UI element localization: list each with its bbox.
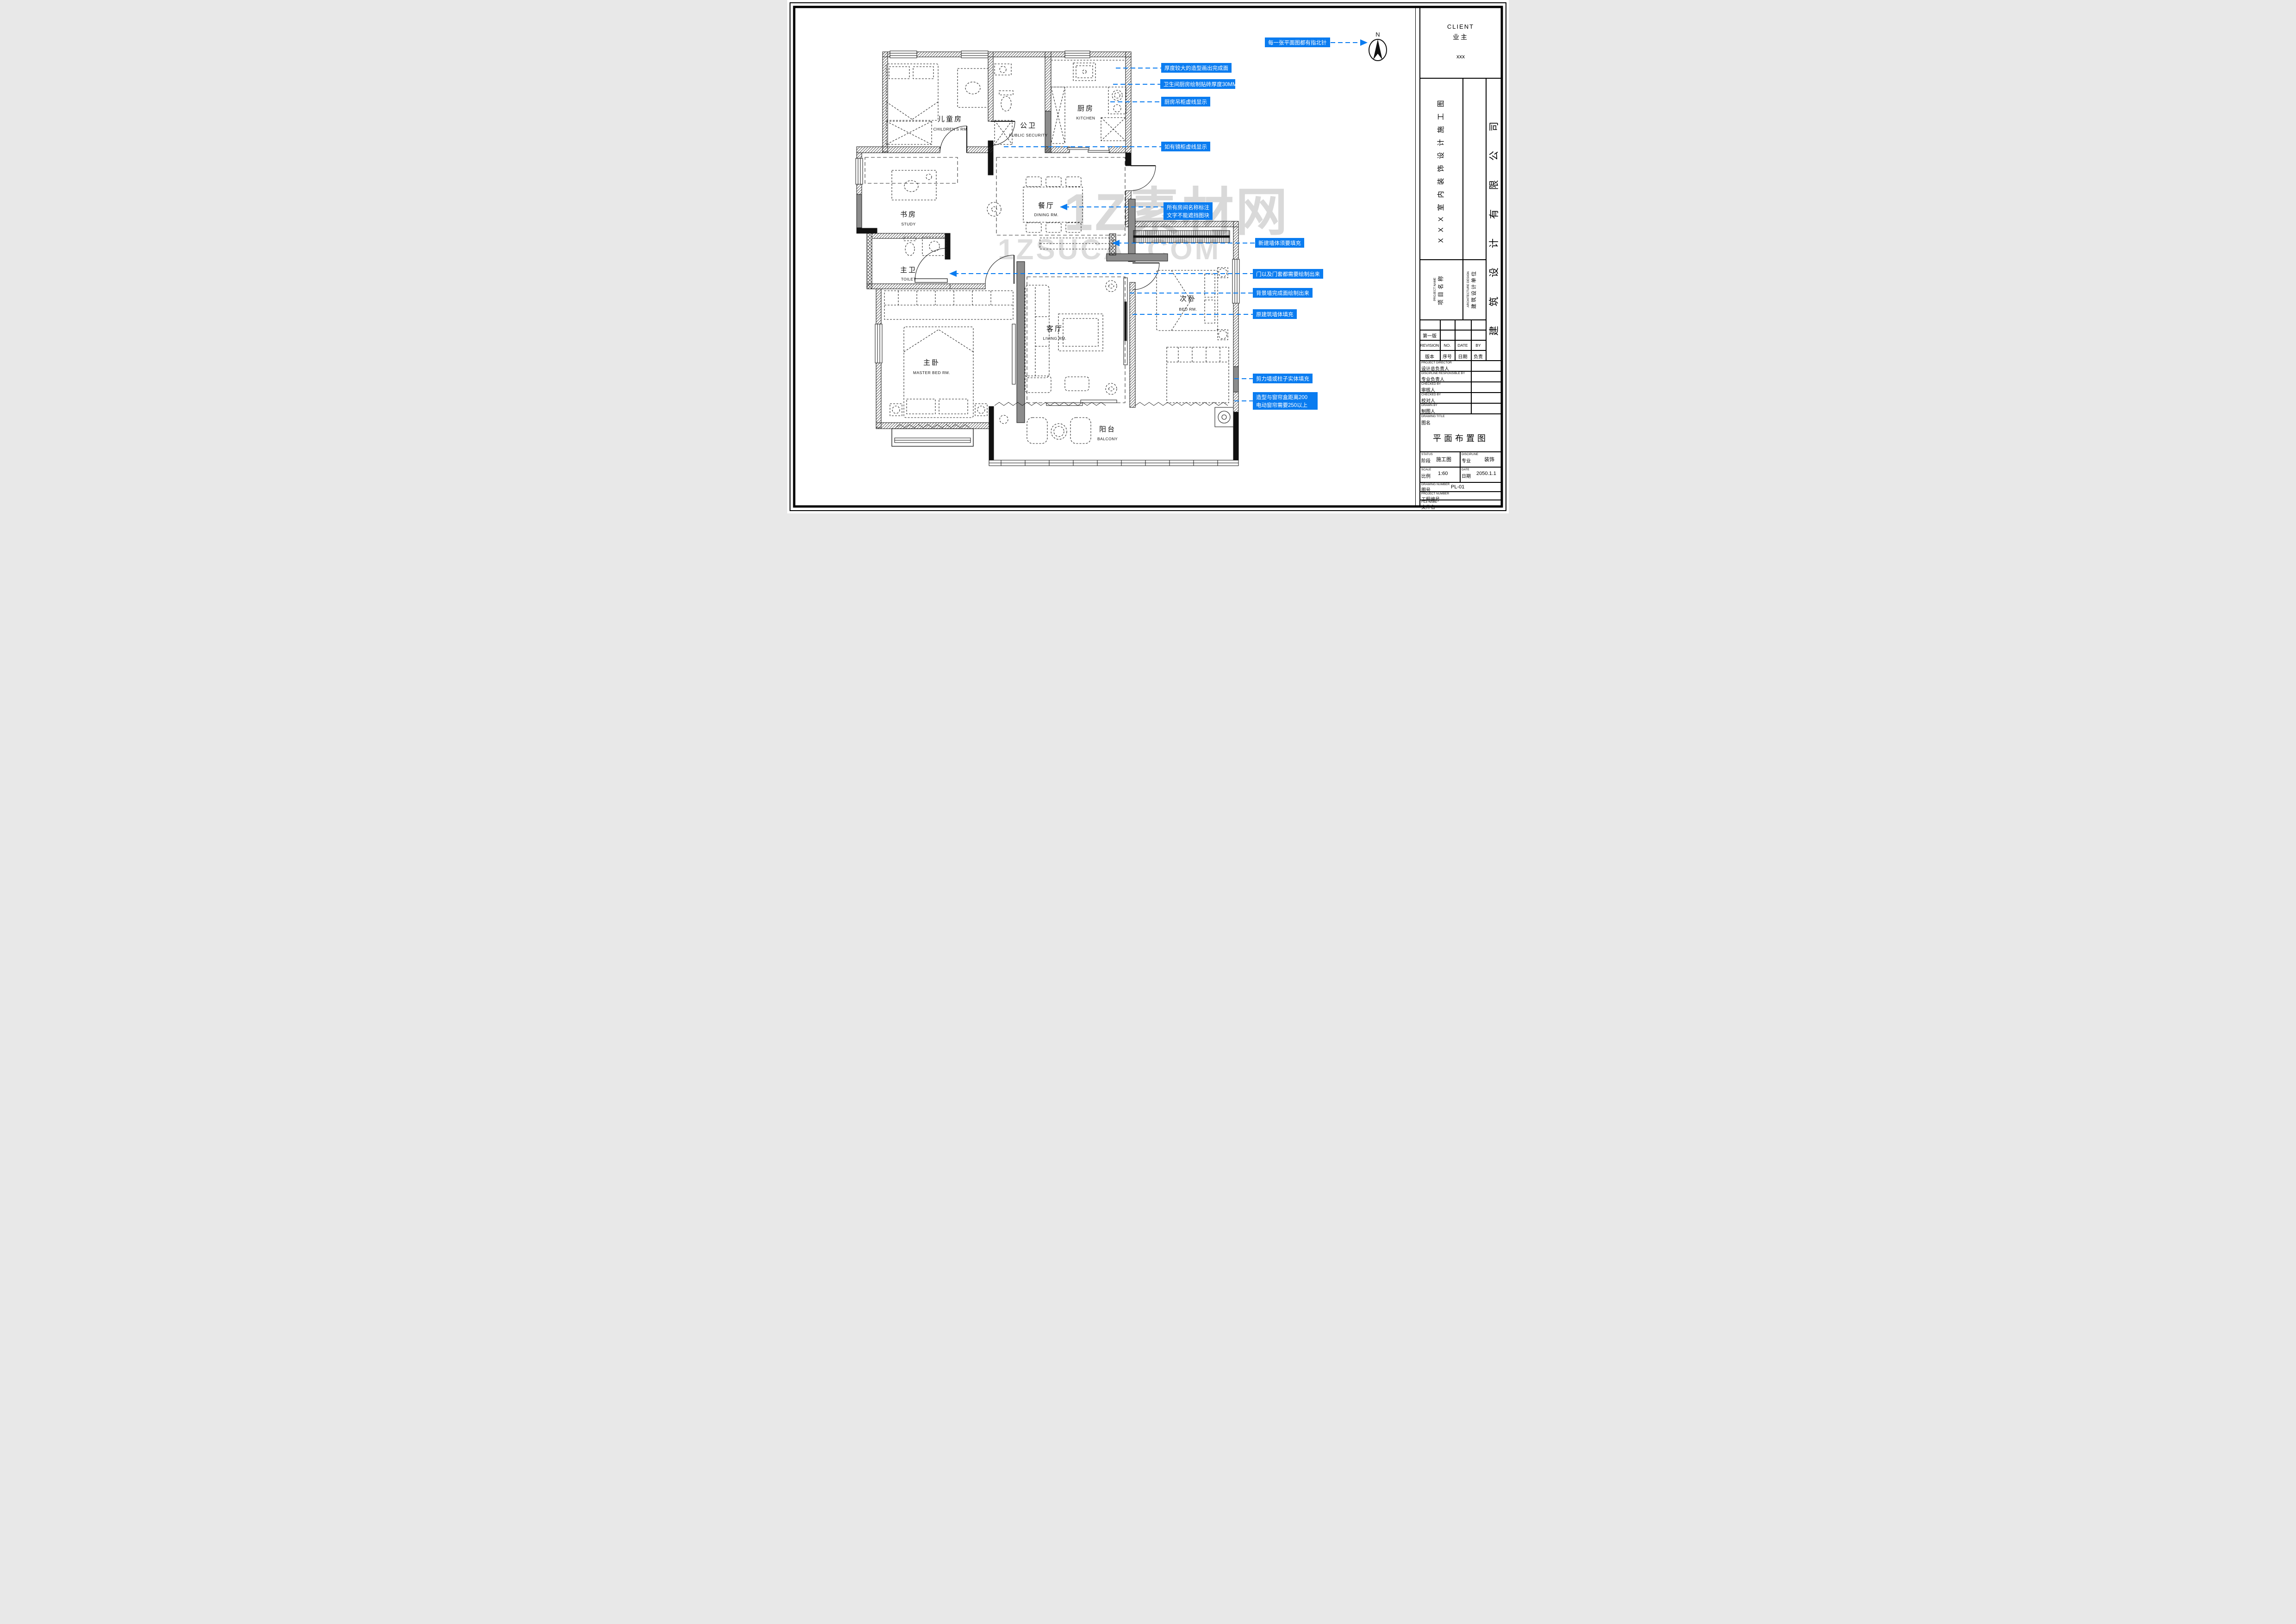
annotation-text: 电动窗帘需要250以上 — [1256, 402, 1307, 408]
drawing-sheet: 1Z素材网 1ZSUCAI.COM — [787, 0, 1509, 513]
master-tv-panel — [1012, 324, 1015, 384]
annotation-feature-wall: 背景墙完成面绘制出来 — [1253, 288, 1313, 298]
discipline-en: DISCIPLINE — [1462, 453, 1478, 456]
room-sublabel-balcony: BALCONY — [1097, 437, 1118, 441]
drawing-number-value: PL-01 — [1451, 484, 1464, 490]
date-cn: 日期 — [1462, 472, 1471, 479]
project-name-cn: 项目名称 — [1437, 262, 1444, 317]
annotation-text: 文字不能遮挡图块 — [1167, 212, 1209, 219]
bay-window — [892, 429, 973, 446]
room-label-kitchen: 厨房 — [1077, 105, 1094, 112]
project-name-vertical: PROJECT NAME 项目名称 — [1433, 262, 1448, 317]
project-director-en: PROJECT DIRECTOR — [1421, 361, 1452, 364]
kitchen-fridge — [1101, 118, 1126, 141]
annotation-thick-shape: 厚度较大的造型画出完成面 — [1161, 63, 1232, 73]
kitchen-sliding-door — [1068, 148, 1109, 152]
new-wall-fill — [1109, 234, 1116, 255]
project-name-en: PROJECT NAME — [1433, 262, 1437, 317]
scale-value: 1:60 — [1438, 471, 1448, 476]
title-block-outer-line — [1415, 7, 1416, 506]
drawing-title-value: 平面布置图 — [1419, 432, 1502, 444]
drawing-title-cn: 图名 — [1421, 419, 1431, 426]
north-label: N — [1375, 31, 1380, 38]
bath-sink — [995, 64, 1011, 75]
revision-header-cn: 版本 — [1419, 353, 1440, 360]
annotation-text: 所有房间名称标注 — [1167, 204, 1209, 211]
discipline-cn: 专业 — [1462, 457, 1471, 464]
coffee-table — [1058, 314, 1103, 351]
annotation-mirror-cabinet: 如有镜柜虚线显示 — [1161, 142, 1210, 151]
annotation-text: 背景墙完成面绘制出来 — [1256, 290, 1309, 296]
drawn-by-en: DRAWN BY — [1421, 404, 1437, 407]
room-sublabel-children: CHILDREN'S RM — [933, 127, 967, 131]
annotation-doors: 门以及门套都需要绘制出来 — [1253, 269, 1323, 279]
bath-toilet — [999, 91, 1013, 111]
kitchen-stove — [1108, 87, 1126, 114]
revision-first-version: 第一版 — [1419, 332, 1440, 339]
second-nightstands — [1218, 268, 1228, 340]
room-label-master-bath: 主卫 — [900, 266, 917, 274]
master-bath-toilet — [904, 237, 916, 256]
proofread-by-en: CHECKED BY — [1421, 393, 1441, 396]
architecture-design-en: ARCHITECTURE DESIGN — [1467, 261, 1470, 318]
room-label-children: 儿童房 — [938, 115, 963, 123]
drawing-title-en: DRAWING TITLE — [1421, 415, 1445, 418]
room-sublabel-study: STUDY — [901, 222, 915, 226]
kitchen-tall-cabinet — [1051, 87, 1065, 144]
window — [890, 51, 917, 58]
annotation-text: 厚度较大的造型画出完成面 — [1164, 65, 1228, 71]
project-director-cn: 设计总负责人 — [1421, 365, 1449, 372]
room-sublabel-master-bed: MASTER BED RM. — [913, 370, 950, 375]
room-sublabel-dining: DINING RM. — [1034, 212, 1059, 217]
washing-machine — [1215, 407, 1233, 427]
room-sublabel-second-bed: BED RM. — [1179, 307, 1197, 312]
by-header-en: BY — [1471, 343, 1486, 348]
children-mat — [886, 121, 932, 144]
scale-en: SCALE — [1421, 468, 1431, 471]
annotation-text: 如有镜柜虚线显示 — [1164, 144, 1207, 150]
client-label-cn: 业主 — [1419, 32, 1502, 42]
annotation-new-wall: 新建墙体须要填充 — [1255, 238, 1304, 248]
room-label-public-bath: 公卫 — [1020, 122, 1037, 130]
no-header-cn: 序号 — [1440, 353, 1455, 360]
file-name-cn: 文件名 — [1421, 503, 1435, 510]
drawing-number-en: DRAWING NUMBER — [1421, 483, 1450, 486]
scale-cn: 比例 — [1421, 472, 1431, 479]
tv-console — [1124, 278, 1127, 365]
title-block: CLIENT 业主 xxx XXX室内装饰设计施工图 建筑设计有限公司 PROJ… — [1419, 7, 1502, 506]
ottoman — [1065, 377, 1089, 391]
balcony-chairs — [1027, 418, 1091, 443]
master-wardrobe — [884, 291, 1013, 319]
annotation-text: 造型与窗帘盒距离200 — [1256, 394, 1307, 400]
balcony-windows — [989, 460, 1238, 466]
annotation-text: 新建墙体须要填充 — [1258, 240, 1301, 246]
shear-wall-bedroom — [1233, 367, 1238, 392]
architecture-design-cn: 建筑设计单位 — [1470, 261, 1477, 318]
shear-wall-center — [1017, 262, 1025, 423]
checked-by-en: CHECKED BY — [1421, 382, 1441, 386]
room-label-living: 客厅 — [1046, 325, 1063, 333]
room-label-master-bed: 主卧 — [923, 359, 940, 367]
sheet-title-vertical: XXX室内装饰设计施工图 — [1436, 78, 1446, 259]
room-sublabel-public-bath: PUBLIC SECURITY — [1009, 133, 1048, 137]
master-bath-vanity — [922, 237, 946, 256]
second-bed-door — [1132, 263, 1159, 290]
annotation-north: 每一张平面图都有指北针 — [1265, 37, 1330, 47]
checked-by-cn: 审核人 — [1421, 386, 1435, 393]
kitchen-counter — [1051, 60, 1126, 87]
annotation-text: 卫生间厨房绘制贴砖厚度30MM — [1164, 81, 1237, 87]
annotation-text: 厨房吊柜虚线显示 — [1164, 99, 1207, 105]
room-sublabel-kitchen: KITCHEN — [1076, 116, 1095, 120]
annotation-room-names: 所有房间名称标注文字不能遮挡图块 — [1164, 202, 1213, 220]
room-label-second-bed: 次卧 — [1180, 295, 1196, 303]
room-sublabel-master-bath: TOILET — [901, 277, 916, 281]
client-label-en: CLIENT — [1419, 23, 1502, 30]
annotation-tile-30mm: 卫生间厨房绘制贴砖厚度30MM — [1160, 79, 1237, 89]
master-nightstands — [890, 404, 987, 416]
children-desk — [958, 69, 988, 107]
company-name-vertical: 建筑设计有限公司 — [1487, 80, 1500, 358]
annotation-text: 门以及门套都需要绘制出来 — [1256, 271, 1320, 277]
room-label-balcony: 阳台 — [1099, 425, 1116, 433]
date-header-cn: 日期 — [1455, 353, 1471, 360]
dining-plant — [987, 202, 1001, 216]
north-compass-icon: N — [1369, 31, 1387, 61]
children-bed — [886, 64, 938, 120]
date-value: 2050.1.1 — [1476, 471, 1496, 476]
date-header-en: DATE — [1455, 343, 1471, 348]
drawn-by-cn: 制图人 — [1421, 407, 1435, 414]
discipline-value: 装饰 — [1484, 456, 1494, 463]
discipline-responsible-en: DISCIPLINE RESPONSIBLE BY — [1421, 372, 1465, 375]
window — [875, 324, 882, 363]
annotation-shear-wall: 剪力墙或柱子实体填充 — [1253, 374, 1313, 383]
status-en: STATUS — [1421, 453, 1433, 456]
second-wardrobe — [1167, 347, 1229, 403]
room-label-study: 书房 — [900, 211, 917, 219]
annotation-kitchen-cabinet: 厨房吊柜虚线显示 — [1161, 97, 1210, 106]
by-header-cn: 负责 — [1471, 353, 1486, 360]
annotation-curtain-box: 造型与窗帘盒距离200电动窗帘需要250以上 — [1253, 392, 1318, 410]
project-number-en: PROJECT NUMBER — [1421, 492, 1449, 495]
date-en: DATE — [1462, 468, 1469, 471]
study-desk — [892, 170, 936, 200]
status-value: 施工图 — [1436, 456, 1451, 463]
window — [961, 51, 988, 58]
window — [856, 158, 863, 184]
room-labels: 儿童房 CHILDREN'S RM 公卫 PUBLIC SECURITY 厨房 … — [900, 105, 1197, 441]
no-header-en: NO. — [1440, 343, 1455, 348]
architecture-design-vertical: ARCHITECTURE DESIGN 建筑设计单位 — [1467, 261, 1481, 318]
room-label-dining: 餐厅 — [1038, 202, 1055, 210]
proofread-by-cn: 校对人 — [1421, 397, 1435, 404]
room-sublabel-living: LIVING RM. — [1043, 336, 1067, 341]
balcony-plant — [1000, 415, 1008, 424]
annotation-text: 剪力墙或柱子实体填充 — [1256, 375, 1309, 382]
annotation-original-wall: 原建筑墙体填充 — [1253, 309, 1297, 319]
client-value: xxx — [1419, 53, 1502, 60]
discipline-responsible-cn: 专业负责人 — [1421, 375, 1444, 382]
window — [1232, 259, 1239, 303]
annotation-text: 原建筑墙体填充 — [1256, 311, 1294, 318]
bath-shower — [995, 120, 1012, 144]
status-cn: 阶段 — [1421, 457, 1431, 464]
living-plants — [1106, 281, 1117, 394]
floor-plan-canvas: 1Z素材网 1ZSUCAI.COM — [787, 0, 1509, 513]
annotation-text: 每一张平面图都有指北针 — [1268, 39, 1327, 46]
radiator — [1133, 231, 1230, 243]
window — [1065, 51, 1090, 58]
revision-header-en: REVISION — [1419, 343, 1440, 348]
shear-wall-study — [857, 194, 862, 228]
master-bath-door — [915, 248, 947, 282]
